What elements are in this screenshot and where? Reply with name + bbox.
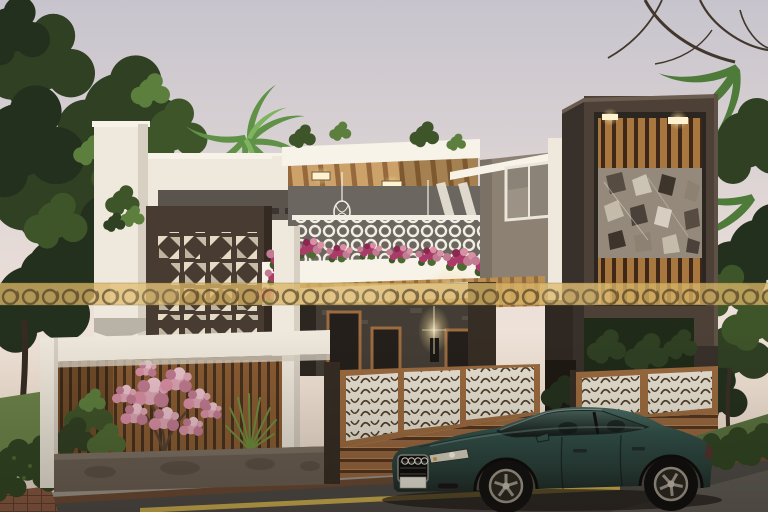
tower-slats-top <box>598 118 702 168</box>
watermark-band <box>0 283 768 305</box>
left-white-pillar <box>92 121 150 340</box>
upper-window <box>506 162 552 220</box>
mirror-mosaic-panel <box>598 168 702 258</box>
dusk-vignette <box>0 330 768 512</box>
rendering-canvas <box>0 0 768 512</box>
